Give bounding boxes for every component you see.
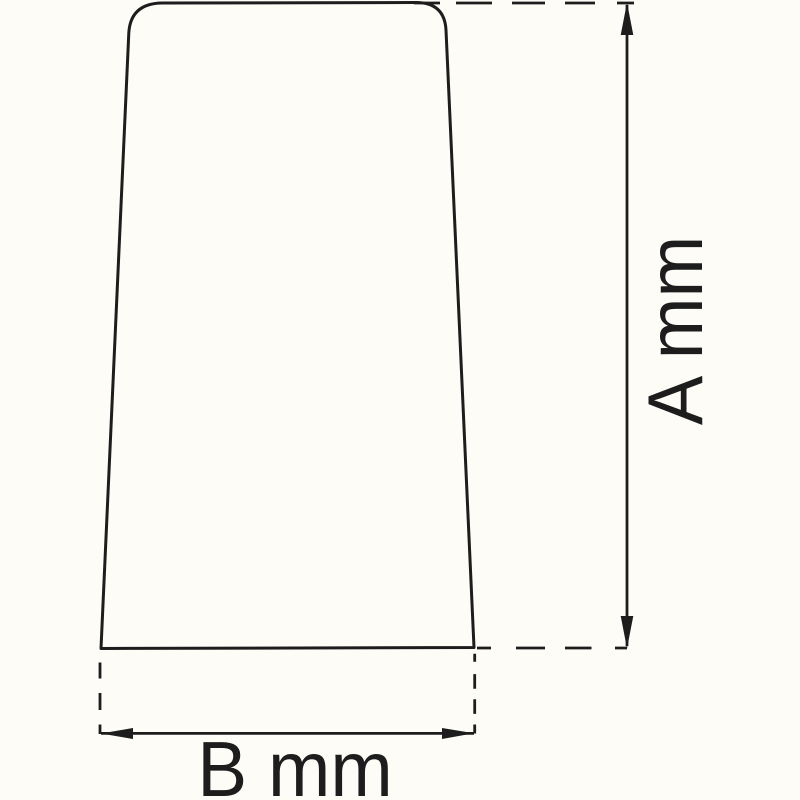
svg-text:A mm: A mm bbox=[632, 236, 719, 425]
svg-text:B mm: B mm bbox=[197, 727, 392, 800]
